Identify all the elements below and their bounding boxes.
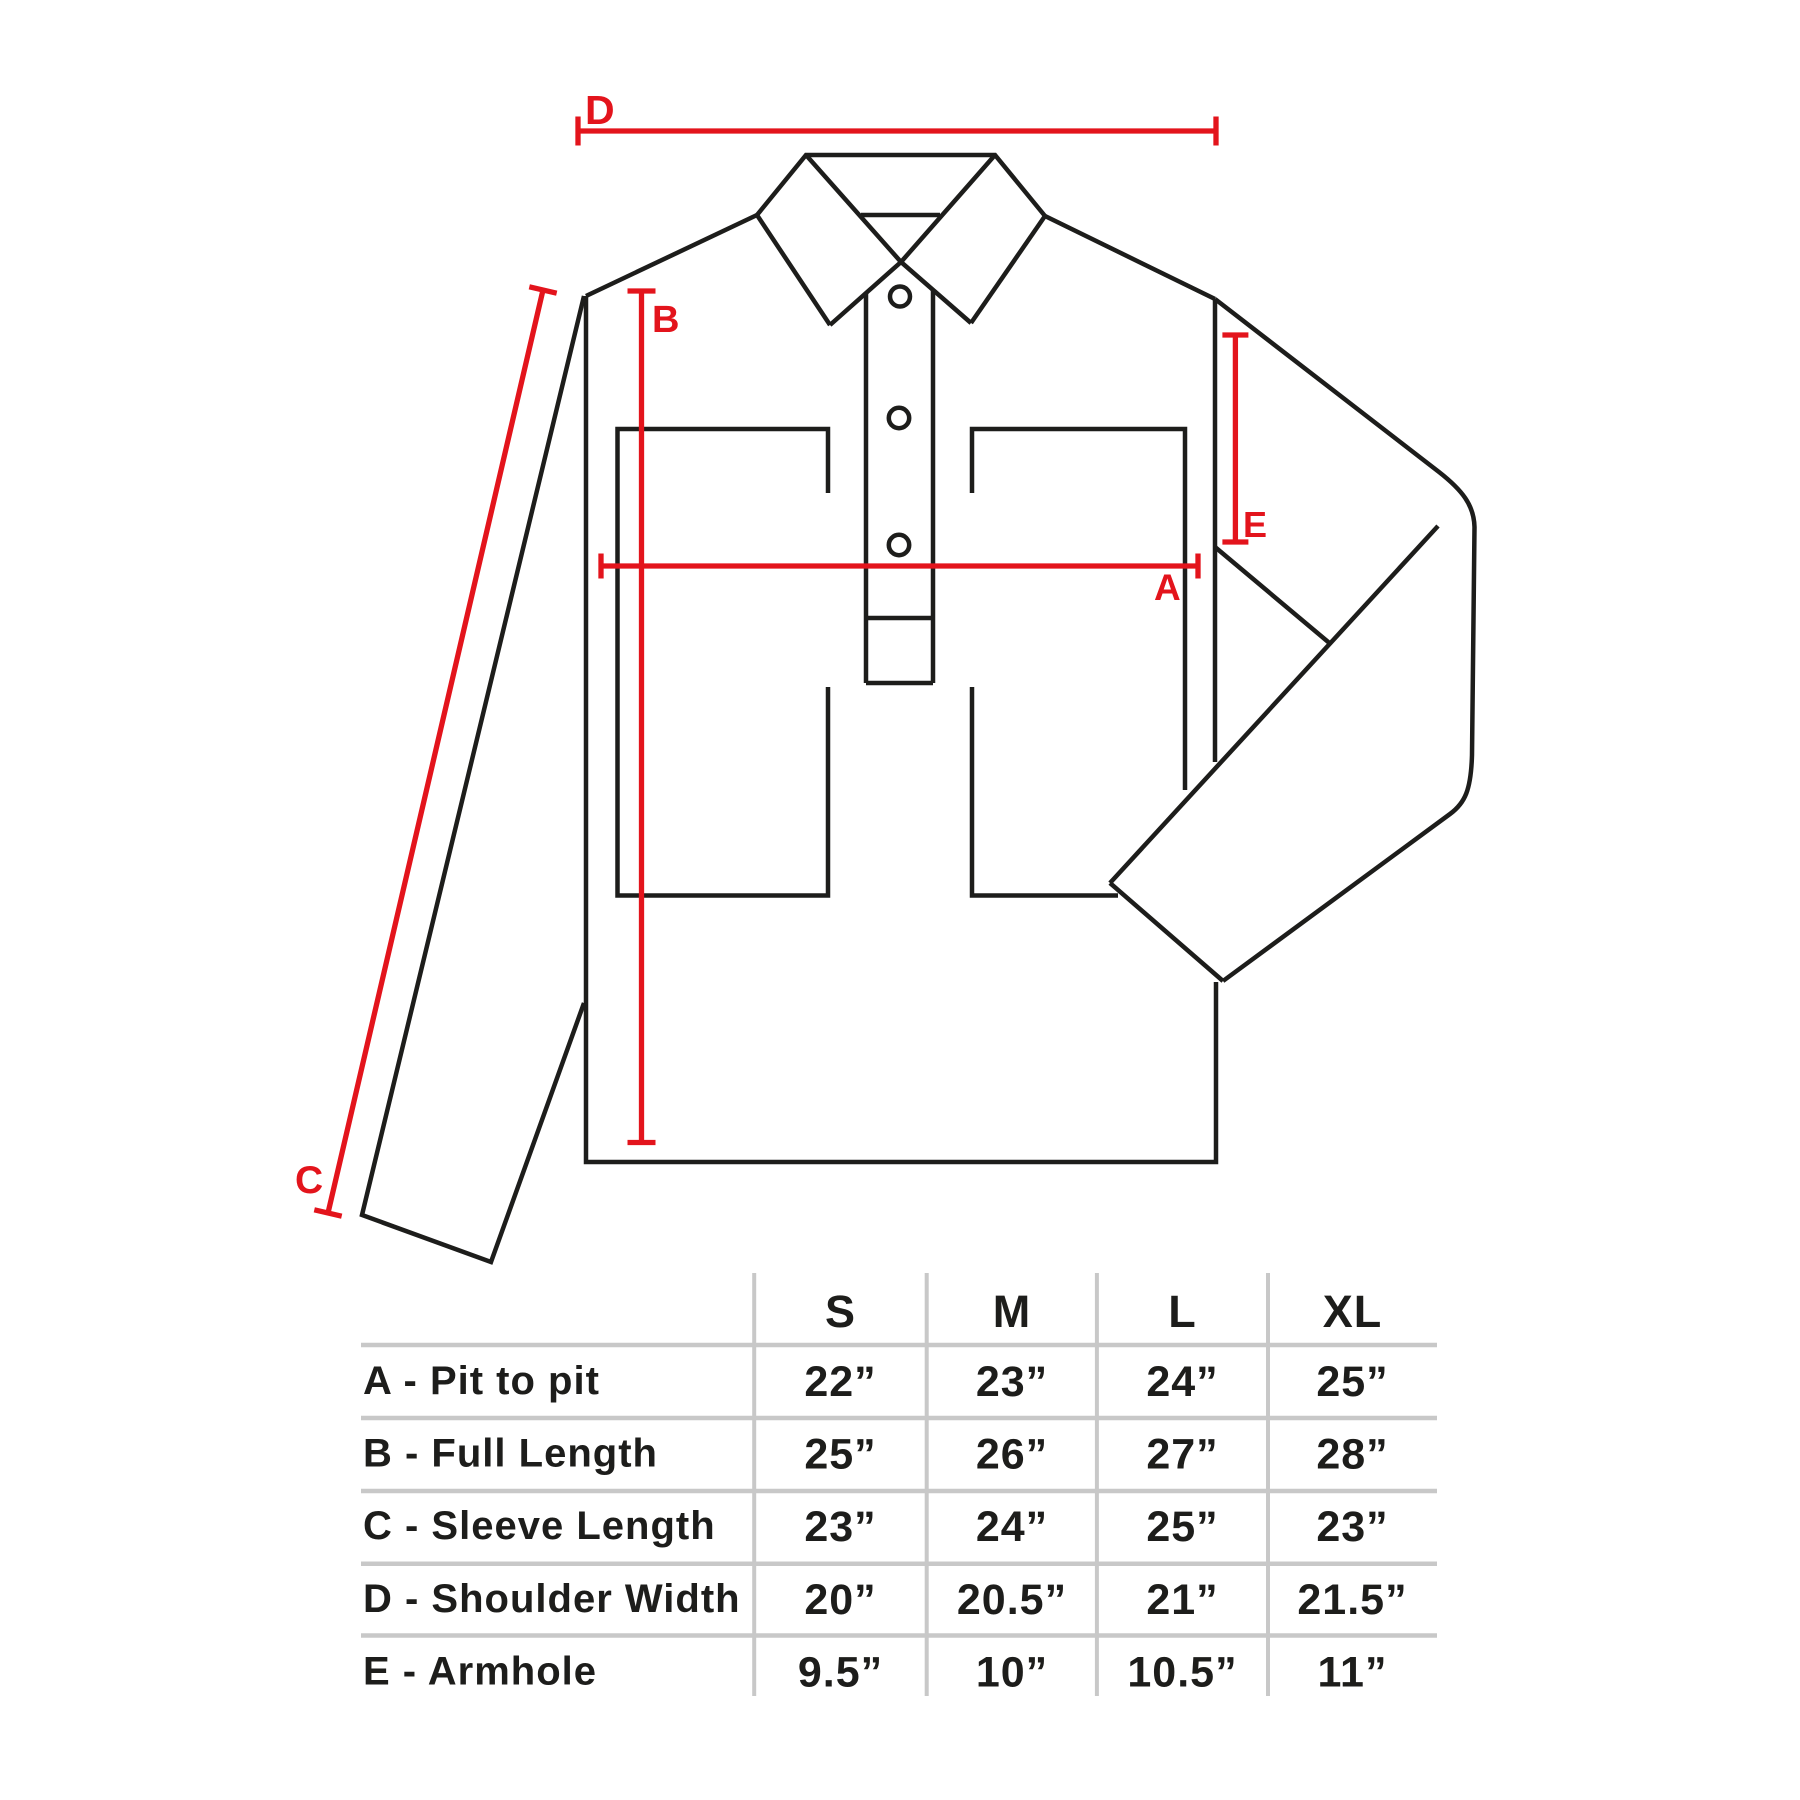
svg-text:D - Shoulder Width: D - Shoulder Width [363, 1577, 741, 1621]
svg-text:24”: 24” [976, 1503, 1048, 1551]
svg-text:25”: 25” [804, 1431, 876, 1479]
svg-text:A: A [1154, 567, 1181, 608]
svg-text:M: M [993, 1286, 1032, 1337]
svg-text:25”: 25” [1316, 1358, 1388, 1406]
svg-text:S: S [825, 1286, 856, 1337]
svg-text:27”: 27” [1146, 1431, 1218, 1479]
svg-text:9.5”: 9.5” [798, 1648, 883, 1696]
svg-text:24”: 24” [1146, 1358, 1218, 1406]
svg-text:21.5”: 21.5” [1297, 1576, 1407, 1624]
svg-text:10”: 10” [976, 1648, 1048, 1696]
svg-text:28”: 28” [1316, 1431, 1388, 1479]
svg-text:23”: 23” [804, 1503, 876, 1551]
svg-text:E - Armhole: E - Armhole [363, 1649, 597, 1693]
svg-text:E: E [1243, 504, 1267, 545]
svg-text:21”: 21” [1146, 1576, 1218, 1624]
svg-text:23”: 23” [1316, 1503, 1388, 1551]
svg-text:D: D [585, 87, 615, 133]
svg-text:25”: 25” [1146, 1503, 1218, 1551]
svg-text:B - Full Length: B - Full Length [363, 1432, 658, 1476]
svg-text:23”: 23” [976, 1358, 1048, 1406]
svg-text:C: C [295, 1159, 323, 1202]
svg-text:L: L [1168, 1286, 1197, 1337]
svg-text:20”: 20” [804, 1576, 876, 1624]
svg-text:20.5”: 20.5” [957, 1576, 1067, 1624]
svg-text:11”: 11” [1318, 1648, 1388, 1696]
svg-text:10.5”: 10.5” [1127, 1648, 1237, 1696]
svg-text:22”: 22” [804, 1358, 876, 1406]
svg-text:B: B [652, 299, 679, 341]
svg-text:XL: XL [1323, 1286, 1383, 1337]
svg-text:C - Sleeve Length: C - Sleeve Length [363, 1504, 716, 1548]
svg-text:26”: 26” [976, 1431, 1048, 1479]
svg-text:A - Pit to pit: A - Pit to pit [363, 1359, 600, 1403]
